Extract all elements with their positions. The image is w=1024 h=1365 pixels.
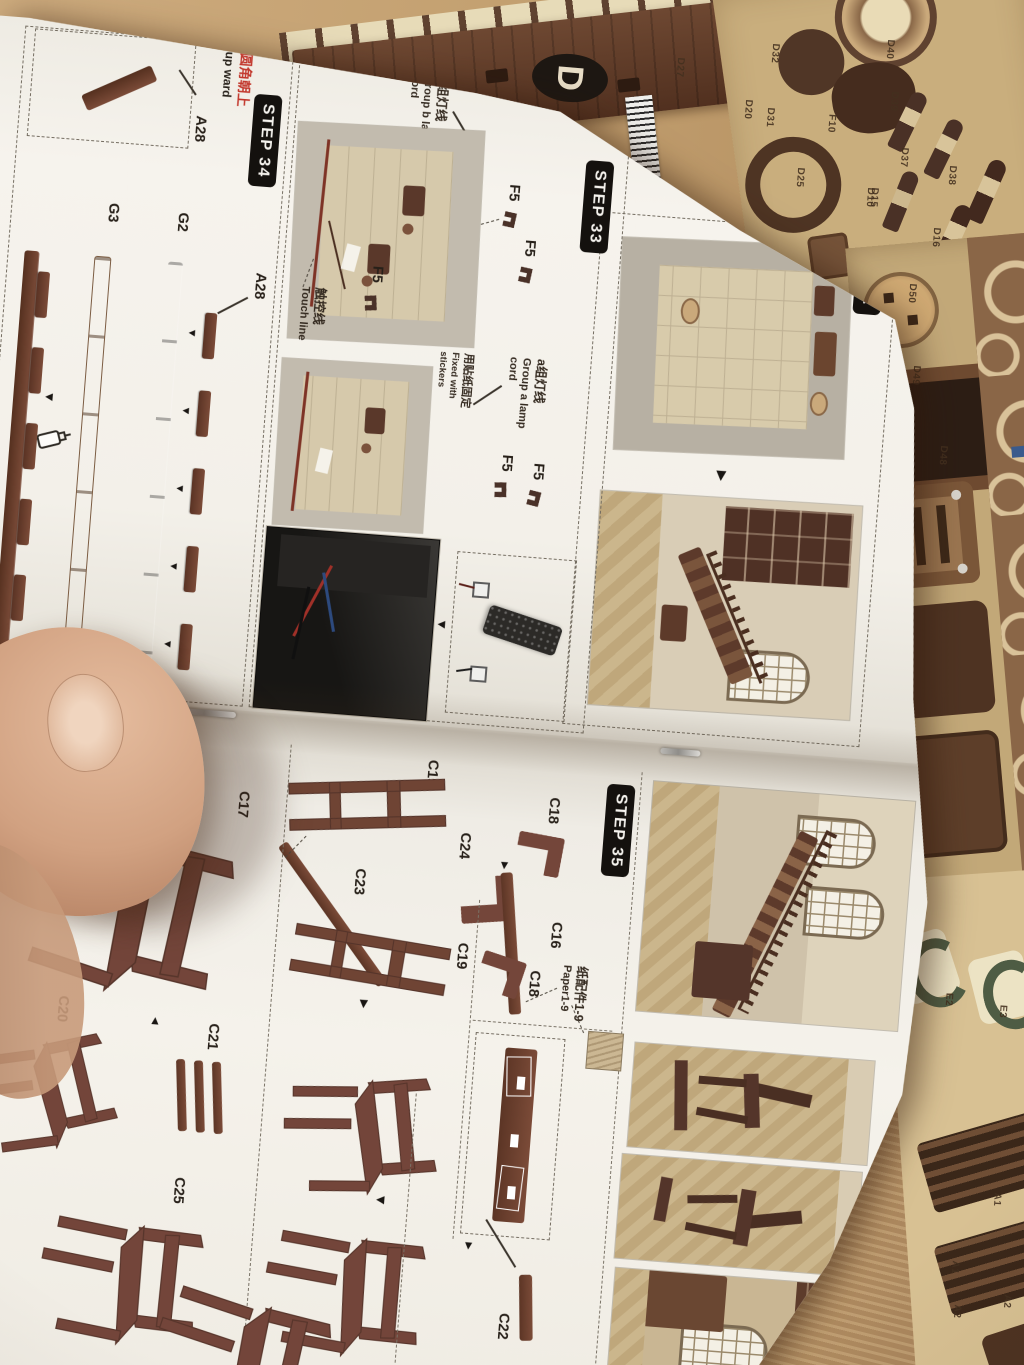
chair-silhouette-leg: [687, 1195, 737, 1203]
c24-label: C24: [455, 832, 473, 860]
battery-arrow: ▼: [435, 618, 449, 632]
room-floor: [295, 375, 409, 515]
paper-swatch: [585, 1031, 624, 1072]
f5-label: F5: [368, 265, 385, 283]
corner-up-note: 圆角朝上 up ward: [216, 51, 254, 137]
step35-render-chair-a: [627, 1043, 874, 1166]
paper-board-box: [460, 1032, 566, 1240]
c21-slat: [176, 1059, 187, 1131]
attach-arrow: ▼: [179, 405, 191, 417]
step33-render-2: [273, 358, 433, 533]
photo-wire-dark: [292, 587, 310, 660]
assemble-arrow: ►: [498, 859, 511, 872]
chair-silhouette-leg: [685, 1222, 738, 1240]
a28-part-large: [81, 65, 157, 111]
green-piece-e3: [966, 948, 1024, 1026]
sheet-label: D40: [884, 39, 896, 60]
c21-label: C21: [204, 1023, 222, 1051]
green-g-shape: [976, 953, 1024, 1035]
photo-scene: D: [0, 0, 1024, 1365]
assemble-arrow: ▼: [374, 1193, 389, 1208]
grille-piece-a1: [916, 1110, 1024, 1214]
roombox-plate: [809, 391, 828, 416]
chair-silhouette-leg: [696, 1107, 749, 1124]
glue-arrow: ▼: [43, 390, 57, 404]
c25-label: C25: [169, 1177, 187, 1205]
dark-cabinet: [691, 941, 753, 1001]
table: [364, 407, 386, 434]
sheet-label: E2: [943, 993, 955, 1007]
arch-window: [802, 885, 886, 941]
bar-floor: [607, 1268, 650, 1365]
sheet-label: A1: [949, 1260, 961, 1275]
f5-label: F5: [529, 463, 546, 481]
table: [402, 185, 426, 216]
attach-arrow: ▼: [173, 483, 185, 495]
c18a-label: C18: [544, 797, 562, 825]
f5-label: F5: [521, 239, 538, 257]
attach-arrow: ▼: [167, 560, 179, 572]
render-wall: [832, 1171, 862, 1276]
sticker-note: 用贴纸固定 Fixed with stickers: [432, 351, 475, 420]
dark-bracket: [980, 1310, 1024, 1365]
bar-wall: [788, 1282, 869, 1365]
render-wall: [841, 1059, 875, 1165]
step35-render-bar: [607, 1268, 869, 1365]
assemble-arrow: ◄: [149, 1014, 162, 1027]
touch-line-note: 触控线 Touch line: [293, 286, 328, 360]
attach-arrow: ▼: [161, 638, 173, 650]
g2-label: G2: [174, 212, 191, 233]
c21-slat: [212, 1062, 223, 1134]
c19b-label: C19: [453, 942, 471, 970]
step32-render-roombox: [614, 237, 853, 459]
sheet-label: A1: [991, 1192, 1003, 1207]
sheet-label: A2: [951, 1304, 963, 1319]
c21-slat: [194, 1060, 205, 1132]
c16-label: C16: [547, 921, 565, 949]
battery-holder: [482, 604, 564, 657]
stool-silhouette: [653, 1176, 673, 1221]
a28-box-label: A28: [191, 115, 209, 143]
sticker-tab: [516, 1076, 525, 1090]
c22-part: [519, 1275, 533, 1341]
roombox-floor: [653, 265, 814, 430]
c19-sideframe-part: [282, 771, 452, 839]
roombox-furniture: [813, 332, 837, 377]
c18b-label: C18: [525, 970, 543, 998]
roombox-furniture: [814, 286, 835, 317]
room-floor: [317, 145, 454, 321]
step35-badge: STEP 35: [600, 784, 635, 878]
step32-badge: STEP 32: [852, 222, 887, 316]
c18-part: [513, 831, 566, 879]
photo-board-edge: [277, 534, 431, 598]
c22-label: C22: [494, 1312, 512, 1340]
chair-frame-assembly: [268, 1056, 444, 1208]
attach-arrow: ▼: [185, 327, 197, 339]
f5-label: F5: [498, 454, 515, 472]
c23-label: C23: [350, 868, 368, 896]
sheet-label: E3: [997, 1005, 1009, 1019]
side-table: [660, 604, 688, 642]
c19-sideframe-part: [285, 915, 455, 1005]
table-silhouette: [674, 1060, 688, 1130]
booklet-page-left: STEP 32 ► STEP 33 b组灯线: [0, 16, 997, 766]
parts-divider-v: [473, 1020, 613, 1032]
step35-render-large: [636, 781, 915, 1031]
sheet-label: D32: [769, 43, 781, 64]
f5-label: F5: [505, 184, 522, 202]
blue-bit: [1011, 445, 1024, 457]
g3-label: G3: [104, 202, 121, 223]
sticker-tab: [510, 1134, 519, 1148]
bar-counter: [637, 1270, 727, 1333]
a28-part-box: [27, 28, 197, 148]
connector-plug: [472, 581, 490, 598]
chair-silhouette-leg: [698, 1076, 746, 1088]
assemble-arrow: ►: [357, 997, 372, 1012]
sheet-label: A2: [1001, 1294, 1013, 1309]
bookcase: [722, 506, 854, 588]
board-arrow: ►: [463, 1240, 476, 1253]
paper-board: [492, 1047, 538, 1223]
sticker-tab: [507, 1186, 516, 1200]
step32-render-assembled: [588, 490, 863, 720]
a28-rail-label: A28: [251, 272, 269, 300]
thumb-nail: [42, 670, 128, 775]
step35-render-chair-b: [615, 1154, 862, 1277]
a-lamp-cord-note: a组灯线 Group a lamp cord: [499, 356, 549, 445]
step32-arrow: ►: [713, 467, 731, 485]
